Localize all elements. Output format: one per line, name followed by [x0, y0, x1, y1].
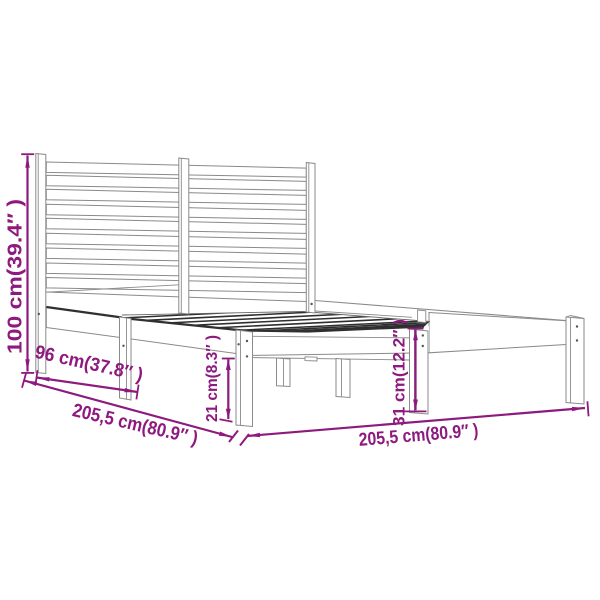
svg-text:100 cm(39.4″ ): 100 cm(39.4″ ) [4, 199, 27, 354]
svg-text:21 cm(8.3″ ): 21 cm(8.3″ ) [204, 335, 221, 422]
svg-text:31 cm(12.2″ ): 31 cm(12.2″ ) [391, 319, 409, 426]
